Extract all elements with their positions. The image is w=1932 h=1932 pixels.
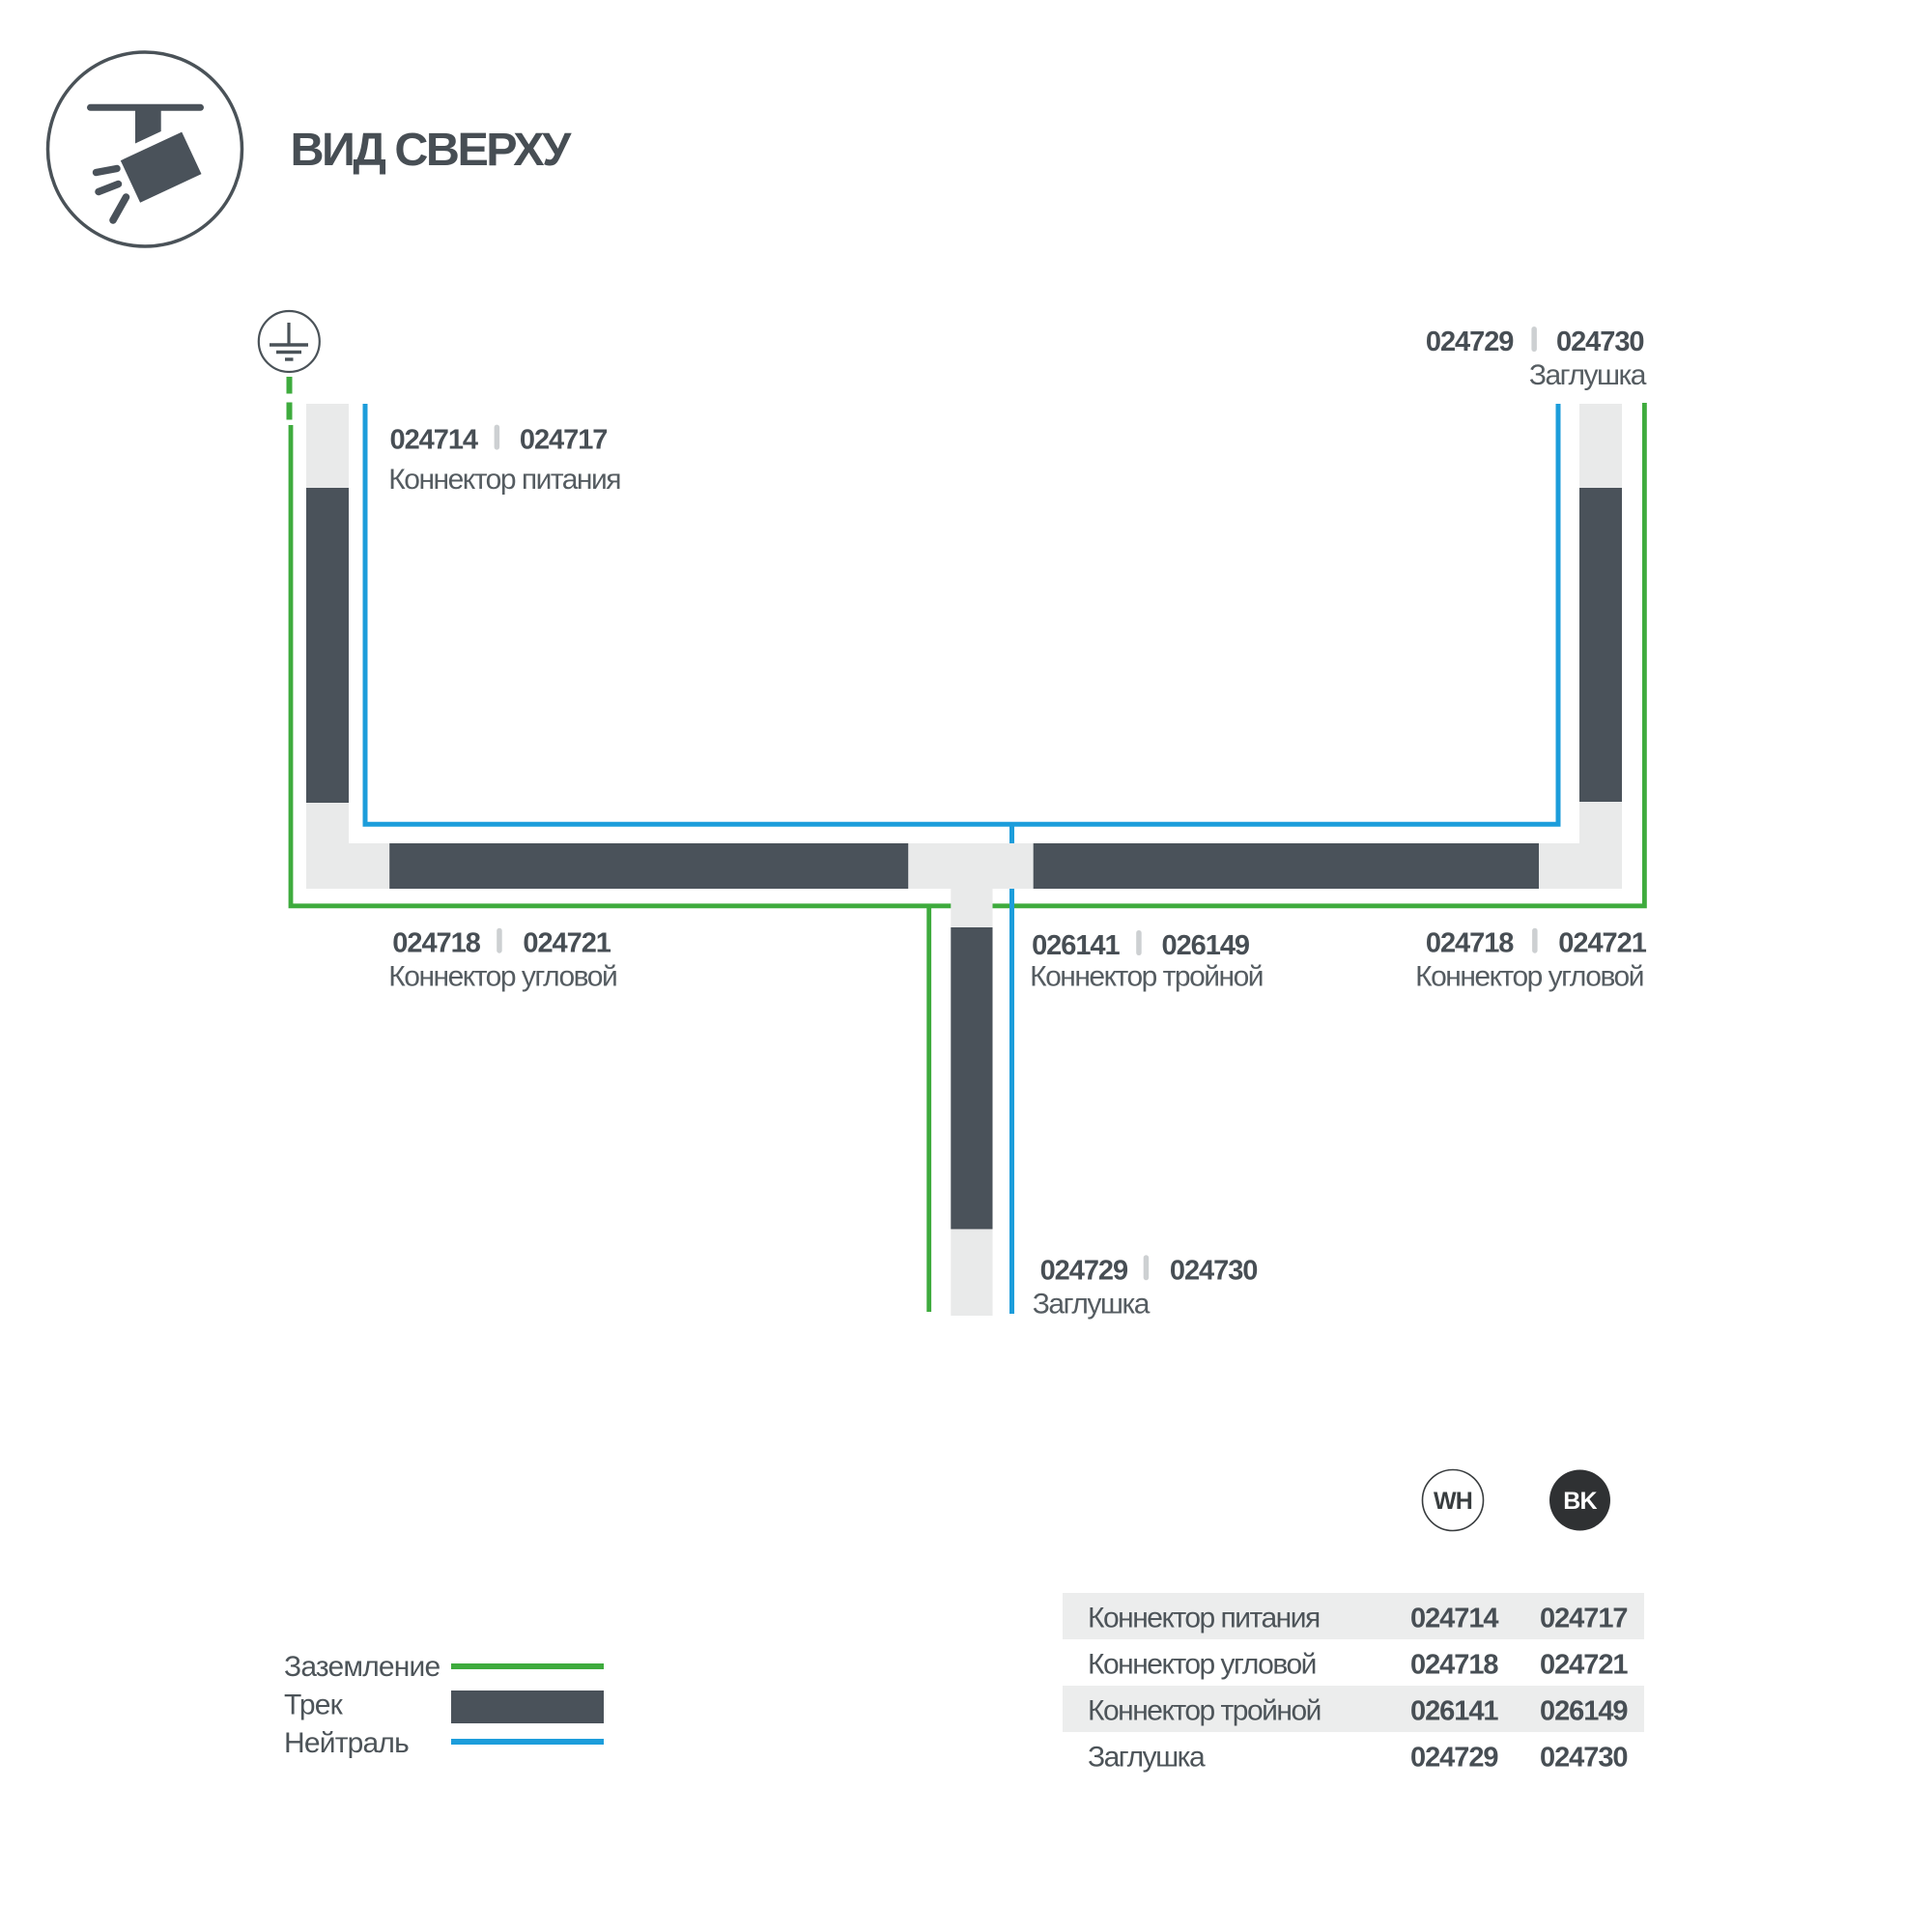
svg-text:024730: 024730 bbox=[1540, 1743, 1627, 1774]
svg-text:Заглушка: Заглушка bbox=[1529, 359, 1647, 391]
svg-text:024729: 024729 bbox=[1040, 1255, 1128, 1286]
svg-text:Трек: Трек bbox=[284, 1690, 344, 1721]
svg-text:Коннектор питания: Коннектор питания bbox=[1088, 1603, 1320, 1634]
svg-text:Коннектор питания: Коннектор питания bbox=[388, 464, 620, 496]
svg-text:Заглушка: Заглушка bbox=[1088, 1742, 1206, 1774]
svg-text:024721: 024721 bbox=[523, 928, 611, 959]
svg-text:Коннектор тройной: Коннектор тройной bbox=[1088, 1695, 1321, 1727]
svg-text:Коннектор тройной: Коннектор тройной bbox=[1030, 960, 1263, 992]
svg-text:024714: 024714 bbox=[390, 425, 478, 456]
svg-text:024721: 024721 bbox=[1558, 928, 1646, 959]
svg-text:ВИД СВЕРХУ: ВИД СВЕРХУ bbox=[291, 124, 573, 176]
svg-text:024718: 024718 bbox=[392, 928, 480, 959]
svg-text:024729: 024729 bbox=[1426, 327, 1514, 357]
svg-text:024717: 024717 bbox=[1540, 1604, 1627, 1634]
svg-text:024718: 024718 bbox=[1410, 1650, 1498, 1681]
svg-text:024714: 024714 bbox=[1410, 1604, 1498, 1634]
svg-text:026149: 026149 bbox=[1540, 1696, 1628, 1727]
svg-text:024718: 024718 bbox=[1426, 928, 1514, 959]
svg-text:024730: 024730 bbox=[1556, 327, 1643, 357]
svg-text:024717: 024717 bbox=[520, 425, 607, 456]
svg-text:Заземление: Заземление bbox=[284, 1651, 440, 1683]
svg-text:Коннектор угловой: Коннектор угловой bbox=[1088, 1649, 1316, 1681]
svg-text:026141: 026141 bbox=[1410, 1696, 1498, 1727]
svg-text:024730: 024730 bbox=[1170, 1255, 1257, 1286]
svg-text:026141: 026141 bbox=[1032, 930, 1120, 961]
svg-text:026149: 026149 bbox=[1162, 930, 1250, 961]
svg-text:BK: BK bbox=[1563, 1488, 1597, 1515]
svg-text:Нейтраль: Нейтраль bbox=[284, 1727, 409, 1759]
svg-text:024729: 024729 bbox=[1410, 1743, 1498, 1774]
svg-text:Коннектор угловой: Коннектор угловой bbox=[388, 961, 616, 993]
svg-text:024721: 024721 bbox=[1540, 1650, 1628, 1681]
svg-text:WH: WH bbox=[1434, 1488, 1472, 1515]
svg-text:Заглушка: Заглушка bbox=[1033, 1288, 1151, 1320]
svg-text:Коннектор угловой: Коннектор угловой bbox=[1415, 961, 1643, 993]
